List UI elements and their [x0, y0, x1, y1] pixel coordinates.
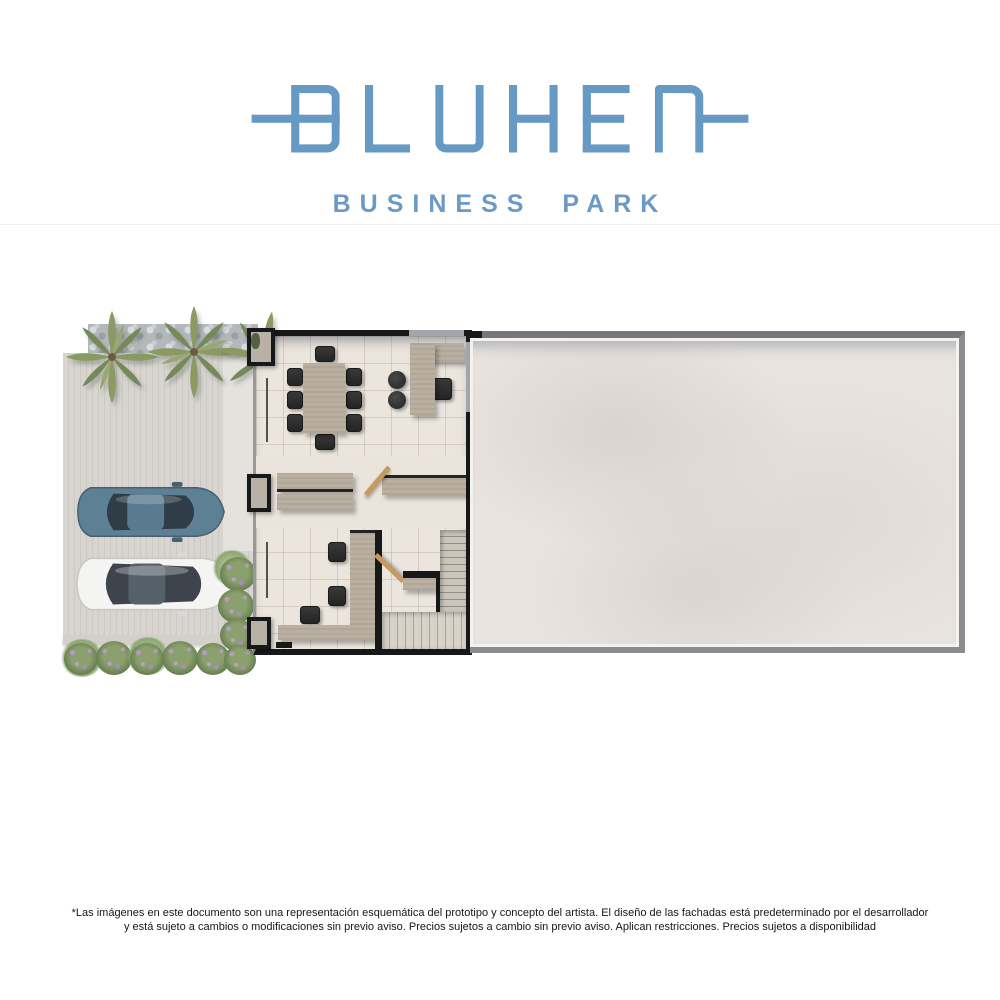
- open-patio: [470, 331, 965, 653]
- window-mullion: [266, 542, 268, 598]
- logo-stroke: [291, 122, 340, 153]
- conference-chair: [315, 346, 335, 362]
- logo-stroke: [697, 115, 748, 123]
- stair-half-wall: [403, 578, 436, 590]
- logo-stroke: [583, 115, 624, 123]
- office-chair: [328, 586, 346, 606]
- office-chair: [300, 606, 320, 624]
- logo-stroke: [583, 85, 630, 93]
- conference-table: [303, 363, 345, 433]
- pouf: [388, 391, 406, 409]
- conference-chair: [287, 414, 303, 432]
- double-counter: [277, 494, 353, 510]
- conference-chair: [287, 368, 303, 386]
- entry-door-box: [247, 474, 271, 512]
- conference-chair: [346, 414, 362, 432]
- wordmark-text: BLUHEN: [252, 85, 253, 86]
- car-white: [72, 551, 236, 617]
- staircase-lower-flight: [382, 612, 466, 649]
- door-floor: [251, 621, 267, 645]
- logo-stroke: [583, 144, 630, 152]
- car-blue: [73, 481, 228, 543]
- pouf: [388, 371, 406, 389]
- office-desk: [278, 625, 375, 640]
- disclaimer-line: *Las imágenes en este documento son una …: [0, 906, 1000, 920]
- door-floor: [251, 478, 267, 508]
- flower-shrub: [130, 643, 164, 675]
- flower-shrub: [224, 645, 256, 675]
- conference-chair: [346, 391, 362, 409]
- entry-door-box: [247, 617, 271, 649]
- logo-stroke: [365, 144, 410, 152]
- brochure-page: BLUHEN BUSINESS PARK: [0, 0, 1000, 1000]
- brand-tagline: BUSINESS PARK: [0, 190, 1000, 219]
- reception-desk: [410, 343, 435, 415]
- conference-chair: [287, 391, 303, 409]
- double-counter: [277, 473, 353, 492]
- bluhen-wordmark: BLUHEN: [252, 85, 749, 153]
- window-mullion: [266, 378, 268, 442]
- office-chair: [328, 542, 346, 562]
- side-counter: [382, 475, 466, 495]
- conference-chair: [315, 434, 335, 450]
- logo-stroke: [291, 85, 340, 116]
- section-divider: [0, 224, 1000, 225]
- logo-stroke: [365, 85, 373, 153]
- legal-disclaimer: *Las imágenes en este documento son una …: [0, 906, 1000, 934]
- flower-shrub: [220, 557, 256, 591]
- flower-shrub: [162, 641, 198, 675]
- logo-stroke: [509, 115, 558, 123]
- conference-chair: [346, 368, 362, 386]
- logo-stroke: [435, 85, 484, 153]
- flower-shrub: [64, 643, 98, 675]
- staircase-upper-flight: [440, 530, 466, 612]
- plant-icon: [251, 333, 260, 349]
- entry-vestibule: [247, 328, 275, 366]
- stair-partition-wall: [375, 530, 382, 649]
- office-desk: [350, 530, 375, 630]
- office-building: [253, 330, 472, 655]
- glass-wall: [409, 330, 464, 336]
- bench: [276, 642, 292, 648]
- desk-chair: [432, 378, 452, 400]
- floor-plan: [60, 295, 965, 680]
- disclaimer-line: y está sujeto a cambios o modificaciones…: [0, 920, 1000, 934]
- patio-wall-stub: [470, 331, 482, 338]
